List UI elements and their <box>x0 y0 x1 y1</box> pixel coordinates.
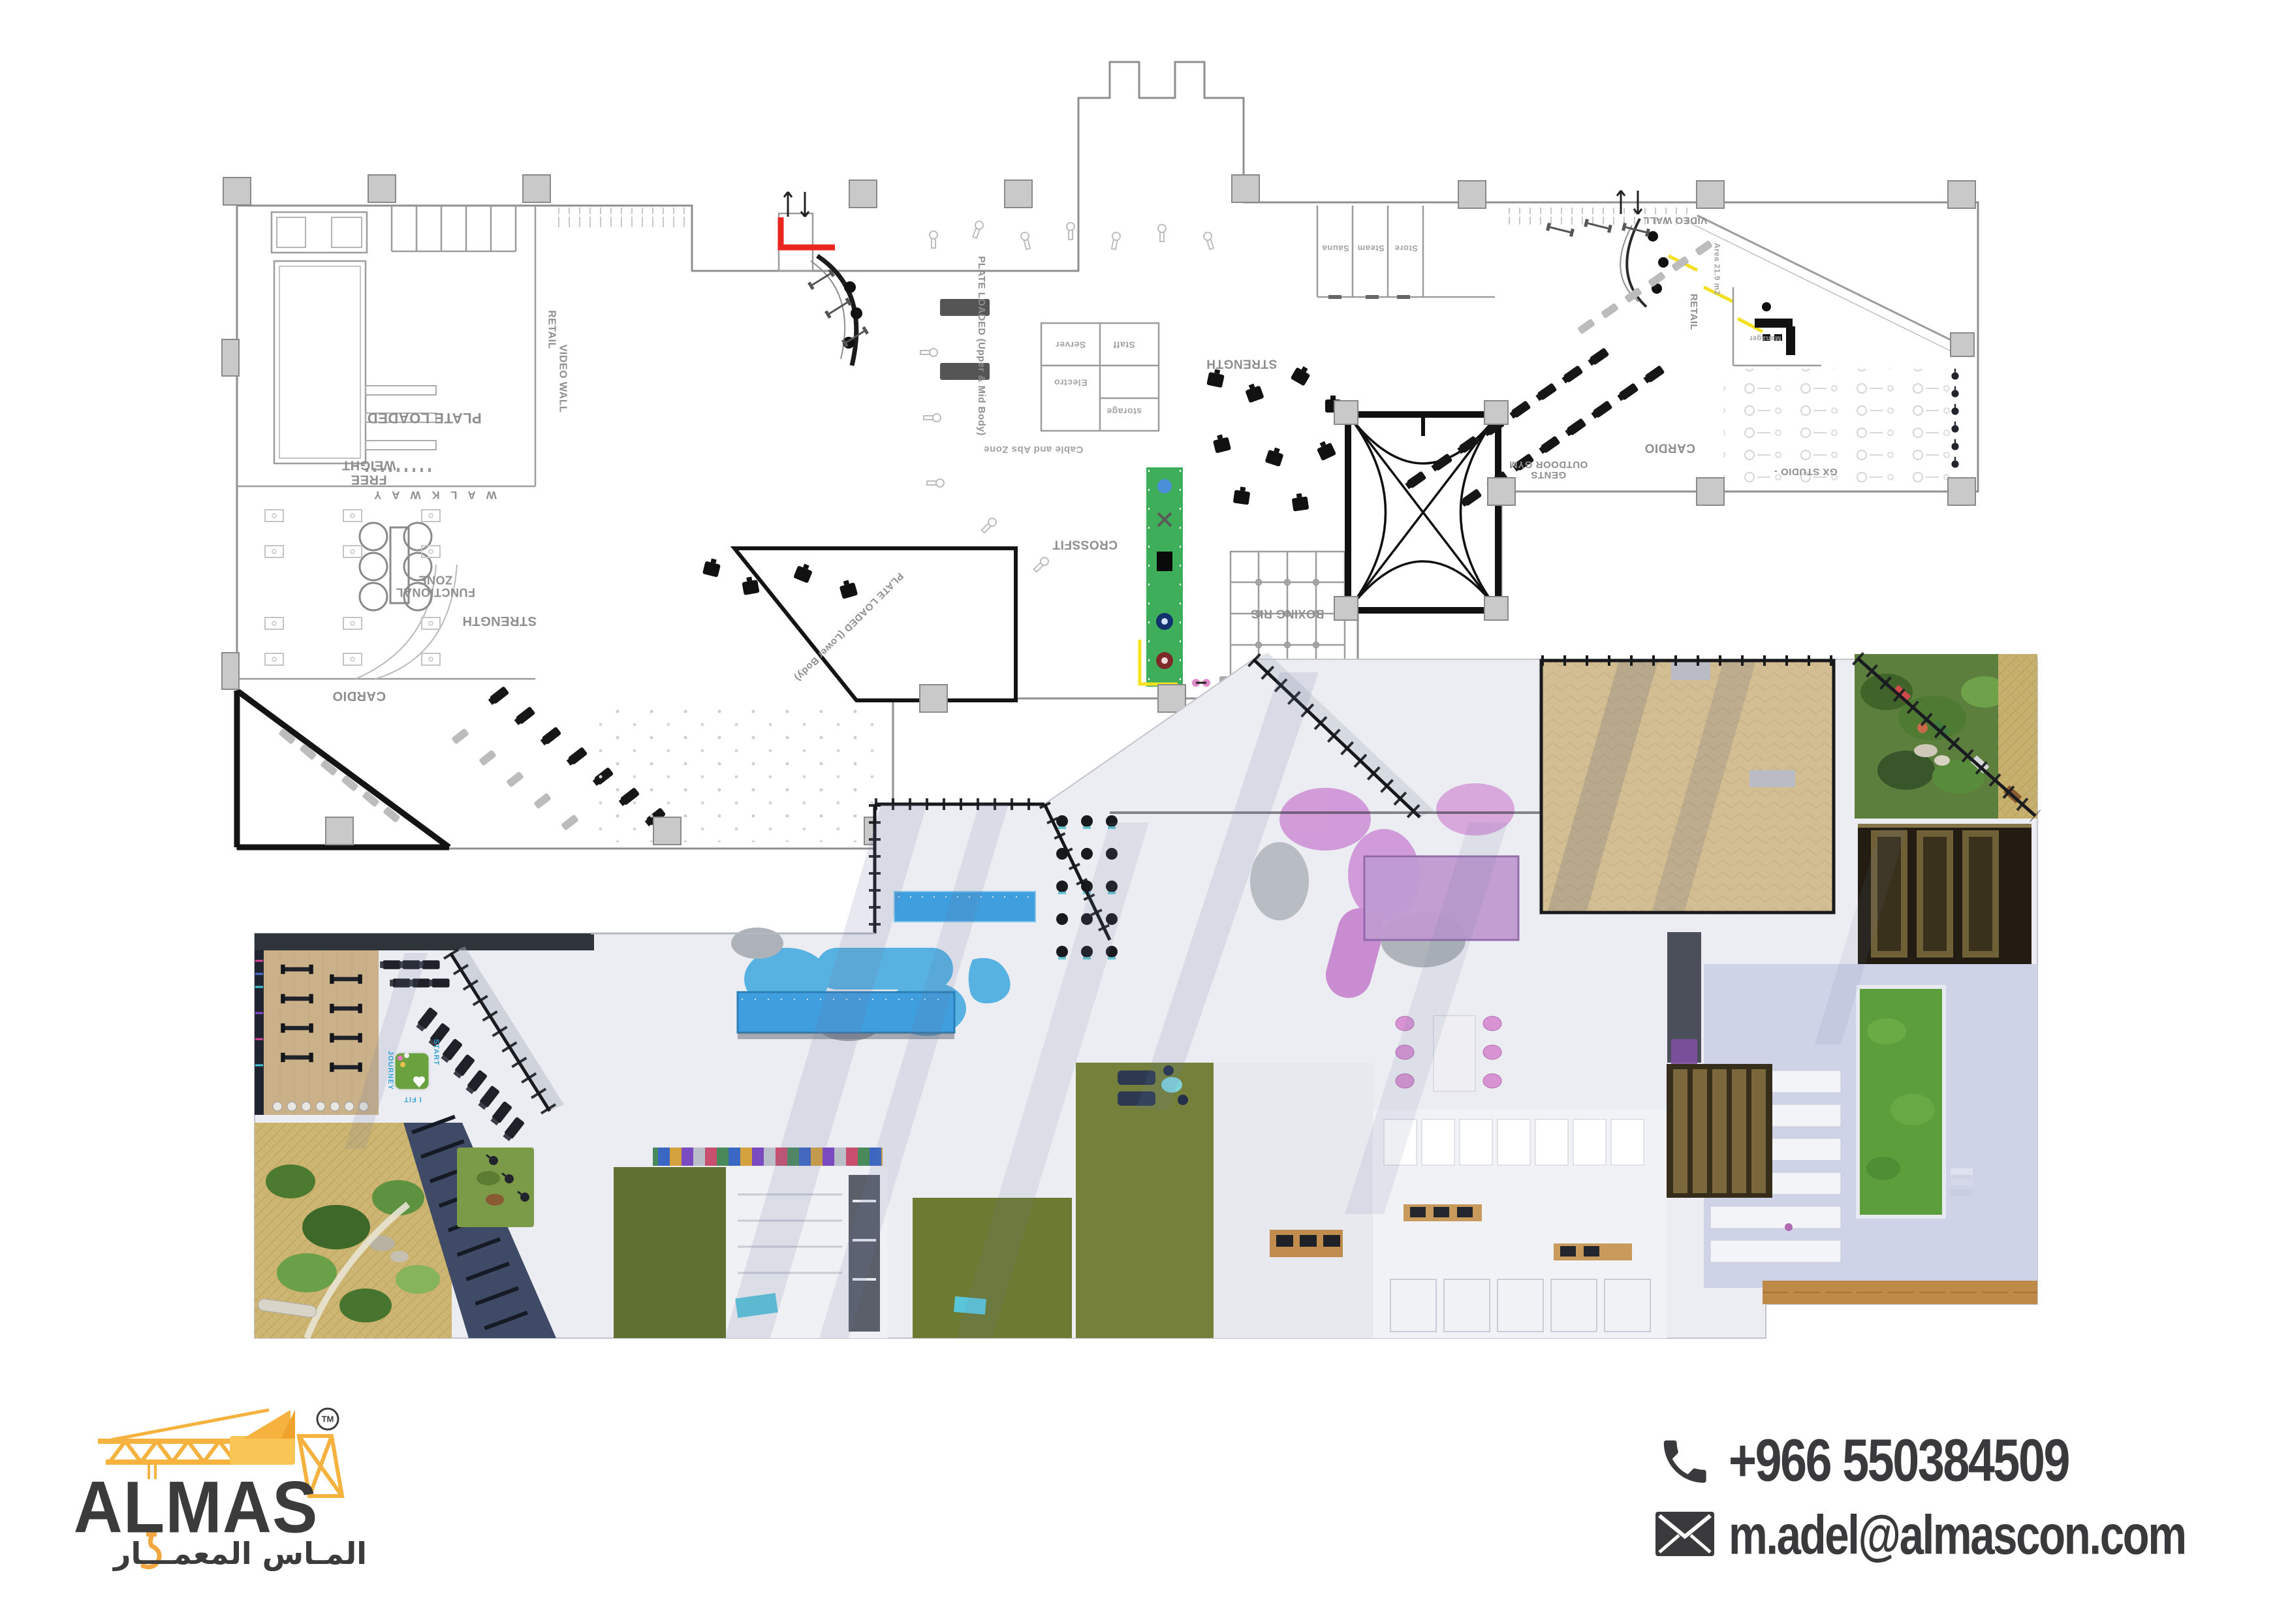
label-steam: Steam <box>1357 243 1385 253</box>
gx-studio-area <box>1723 369 1965 483</box>
label-plate-loaded-upper: PLATE LOADED (Upper & Mid Body) <box>976 256 986 435</box>
changing-room <box>1373 1110 1667 1338</box>
label-retail-left: RETAIL <box>546 310 557 349</box>
label-cable-abs: Cable and Abs Zone <box>984 444 1084 454</box>
contact-email: m.adel@almascon.com <box>1729 1504 2186 1567</box>
label-electro: Electro <box>1054 377 1088 387</box>
label-crossfit: CROSSFIT <box>1052 537 1118 551</box>
logo-arabic: المـاس المعمـــار <box>114 1536 367 1571</box>
label-free-weight: FREE WEIGHT <box>342 458 396 486</box>
floor-text-journey: JOURNEY <box>386 1051 394 1090</box>
label-storage: storage <box>1106 406 1142 416</box>
wood-gym-room <box>264 950 379 1115</box>
mat-dots-left <box>588 708 885 842</box>
wood-studio-E <box>1541 661 1834 913</box>
plan-lockers-strip <box>555 208 685 227</box>
label-gents-outdoor: GENTS OUTDOOR GYM <box>1509 459 1588 480</box>
label-area-right: Area 21.9 m2 <box>1713 243 1721 295</box>
neon-wall <box>255 950 264 1115</box>
label-boxing-rig: BOXING RIG <box>1250 607 1324 619</box>
label-cardio-left: CARDIO <box>332 688 386 702</box>
turf-room-B <box>614 1167 726 1338</box>
gold-lockers <box>1667 1064 1772 1198</box>
artwork <box>0 0 2290 1624</box>
journey-planter <box>394 1052 430 1090</box>
roof-strip <box>255 933 594 950</box>
label-cardio-right: CARDIO <box>1644 441 1695 454</box>
label-store: Store <box>1394 243 1418 253</box>
exercise-mats-row <box>653 1148 883 1166</box>
label-plate-loaded: PLATE LOADED <box>367 410 481 426</box>
label-server: Server <box>1056 339 1086 349</box>
contact-phone: +966 550384509 <box>1729 1427 2069 1495</box>
label-strength-mid: STRENGTH <box>1206 356 1278 370</box>
phone-icon <box>1664 1441 1706 1483</box>
label-gx-studio: GX STUDIO - <box>1774 466 1837 476</box>
label-manager: Manager <box>1749 334 1781 341</box>
label-functional-zone: FUNCTIONAL ZONE <box>396 573 475 599</box>
floor-text-i-fit: I FIT <box>403 1095 422 1103</box>
label-walk-way: W A L K W A Y <box>370 489 497 501</box>
label-retail-right: RETAIL <box>1688 294 1699 330</box>
contact-icons <box>1655 1441 1714 1556</box>
label-staff: Staff <box>1113 339 1135 349</box>
label-sauna: Sauna <box>1322 243 1349 253</box>
poster-canvas: PLATE LOADED FREE WEIGHT W A L K W A Y R… <box>0 0 2290 1624</box>
logo-tm: TM <box>322 1414 334 1424</box>
floor-text-start: START <box>432 1039 440 1066</box>
red-highlight <box>781 217 835 247</box>
email-icon <box>1655 1512 1714 1556</box>
label-strength-left: STRENGTH <box>462 613 537 627</box>
label-video-wall-left: VIDEO WALL <box>557 345 568 413</box>
label-video-wall-right: VIDEO WALL <box>1643 215 1707 225</box>
